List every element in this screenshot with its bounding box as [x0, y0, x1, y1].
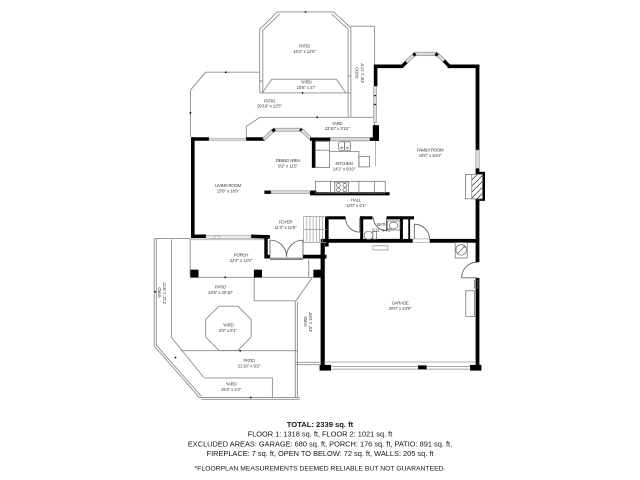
svg-text:9'2" x 11'5": 9'2" x 11'5": [278, 163, 298, 168]
svg-text:13'6" x 18'0": 13'6" x 18'0": [217, 188, 240, 193]
svg-text:11'3" x 11'8": 11'3" x 11'8": [275, 225, 297, 230]
svg-text:6'11" x 4'5": 6'11" x 4'5": [372, 227, 392, 232]
svg-text:29'10" x 12'5": 29'10" x 12'5": [257, 104, 282, 109]
svg-text:TOTAL: 2339 sq. ft: TOTAL: 2339 sq. ft: [287, 420, 354, 429]
svg-text:8'9" x 8'1": 8'9" x 8'1": [219, 328, 237, 333]
svg-text:15'8" x 27': 15'8" x 27': [297, 85, 316, 90]
svg-text:4'5" x 19'5": 4'5" x 19'5": [308, 311, 313, 332]
svg-text:FIREPLACE: 7 sq. ft, OPEN TO B: FIREPLACE: 7 sq. ft, OPEN TO BELOW: 72 s…: [207, 449, 434, 458]
svg-text:19'0" x 34'4": 19'0" x 34'4": [419, 153, 442, 158]
svg-text:FLOOR 1: 1318 sq. ft, FLOOR 2:: FLOOR 1: 1318 sq. ft, FLOOR 2: 1021 sq. …: [248, 430, 393, 439]
svg-text:4'8" x 17'4": 4'8" x 17'4": [360, 62, 365, 83]
svg-text:12'0" x 4'1": 12'0" x 4'1": [346, 203, 367, 208]
svg-text:21'10" x 9'2": 21'10" x 9'2": [238, 363, 261, 368]
svg-text:14'2" x 9'10": 14'2" x 9'10": [333, 166, 356, 171]
svg-text:23'6" x 20'10": 23'6" x 20'10": [208, 290, 233, 295]
svg-text:23'10" x 3'10": 23'10" x 3'10": [325, 126, 350, 131]
svg-text:16'2" x 12'6": 16'2" x 12'6": [293, 49, 316, 54]
svg-text:15'3" x 4'4": 15'3" x 4'4": [221, 387, 242, 392]
svg-text:2'11" x 20'2": 2'11" x 20'2": [162, 281, 167, 304]
svg-text:22'4" x 12'0": 22'4" x 12'0": [230, 258, 253, 263]
svg-text:29'0" x 23'9": 29'0" x 23'9": [389, 306, 412, 311]
svg-text:*FLOORPLAN MEASUREMENTS DEEMED: *FLOORPLAN MEASUREMENTS DEEMED RELIABLE …: [195, 465, 446, 472]
svg-text:EXCLUDED AREAS: GARAGE: 680 sq: EXCLUDED AREAS: GARAGE: 680 sq. ft, PORC…: [188, 440, 452, 449]
